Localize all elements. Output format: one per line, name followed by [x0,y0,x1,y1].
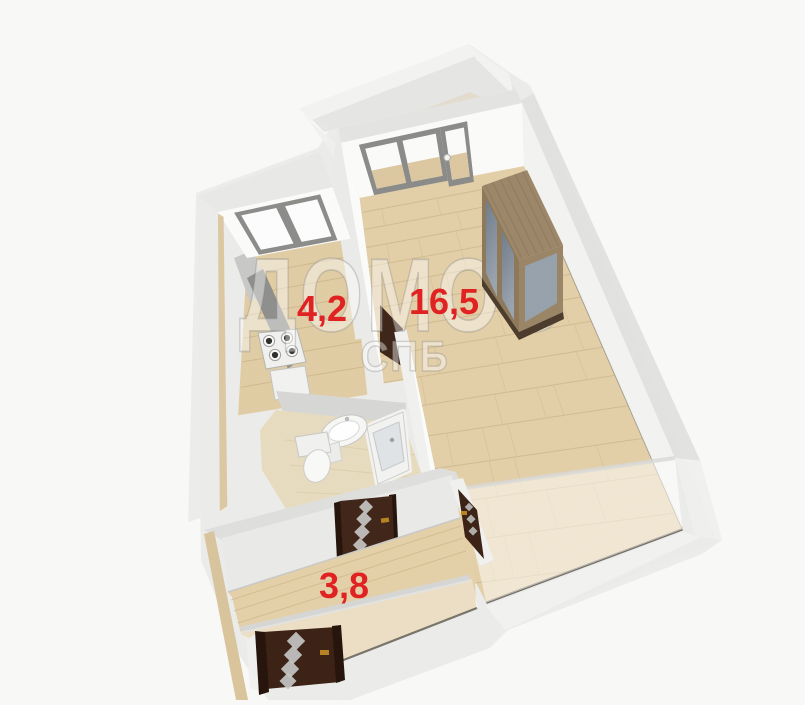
svg-text:3,8: 3,8 [319,565,369,606]
svg-text:4,2: 4,2 [297,288,347,329]
svg-text:16,5: 16,5 [409,281,479,322]
